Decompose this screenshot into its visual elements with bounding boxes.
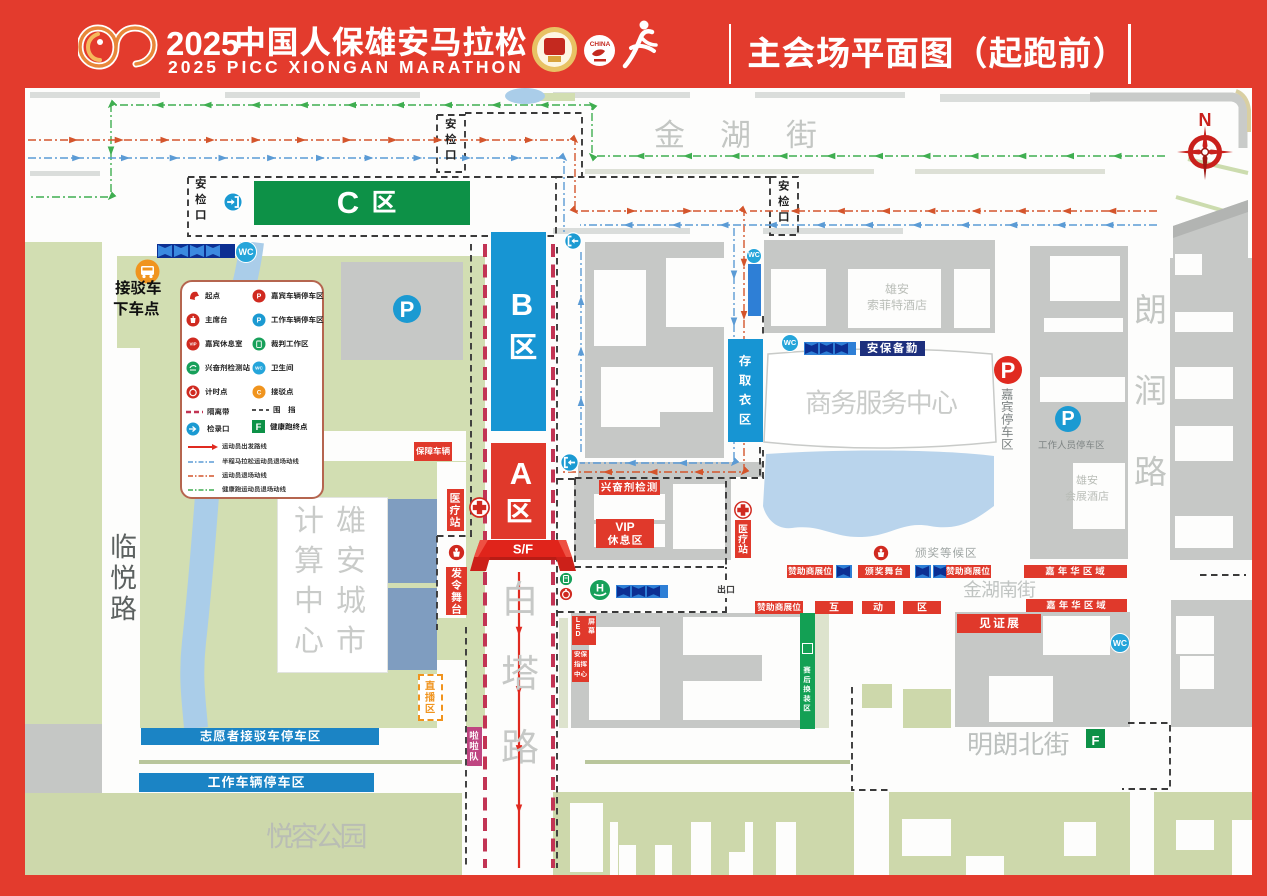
svg-text:P: P (257, 318, 262, 325)
svg-text:VIP: VIP (189, 342, 196, 347)
svg-text:WC: WC (255, 366, 263, 371)
svg-text:P: P (257, 294, 262, 301)
svg-text:F: F (256, 422, 262, 433)
svg-text:C: C (257, 389, 262, 396)
